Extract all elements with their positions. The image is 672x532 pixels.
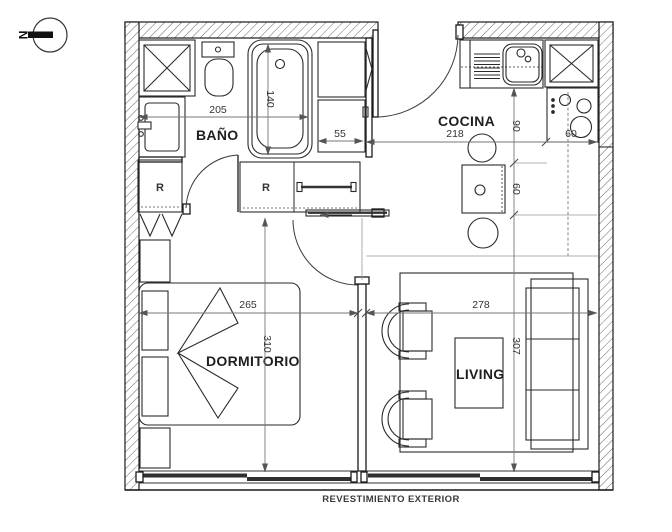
pillow xyxy=(142,291,168,350)
bedroom: DORMITORIO xyxy=(139,218,362,468)
dim-entry-cabinet: 55 xyxy=(334,128,346,140)
entry-door-jamb xyxy=(456,25,463,39)
hall-closet: R xyxy=(240,162,389,216)
window-glazing xyxy=(247,477,351,481)
blanket-fold xyxy=(178,288,238,353)
kitchen-table xyxy=(462,165,505,213)
floor-plan-drawing: N xyxy=(0,0,672,532)
entry-door xyxy=(373,25,463,117)
kitchen-chair-bottom xyxy=(468,218,498,248)
entry-door-swing-arc xyxy=(378,35,458,117)
dim-living-depth: 307 xyxy=(510,337,522,355)
dim-kitchen-width: 218 xyxy=(446,128,464,140)
entry-cabinet-upper xyxy=(318,42,372,97)
dim-table-zone: 60 xyxy=(510,183,522,195)
closet-door-left xyxy=(140,214,160,236)
kitchen: COCINA xyxy=(366,40,598,258)
window-glazing xyxy=(142,474,247,478)
dim-counter-depth: 90 xyxy=(510,120,522,132)
burner-small xyxy=(560,95,571,106)
bedroom-door-swing-arc xyxy=(293,220,358,285)
bathroom-door xyxy=(183,155,238,214)
entry-cabinet-lower xyxy=(318,100,368,152)
wall-top-left xyxy=(125,22,378,38)
dim-bathroom-width: 205 xyxy=(209,104,227,116)
pillow xyxy=(142,357,168,416)
armchair-bottom xyxy=(382,391,432,447)
bathroom: BAÑO xyxy=(138,40,372,158)
exterior-finish-label: REVESTIMIENTO EXTERIOR xyxy=(322,494,459,505)
closet-door-right xyxy=(162,214,182,236)
dim-living-width: 278 xyxy=(472,299,490,311)
kitchen-counter xyxy=(460,40,543,88)
bathroom-closet: R xyxy=(138,160,182,236)
drainer xyxy=(474,54,500,79)
wall-top-right xyxy=(458,22,613,38)
dim-bedroom-depth: 310 xyxy=(261,335,273,353)
kitchen-duct-shaft xyxy=(545,40,598,87)
armchair-top xyxy=(382,303,432,359)
bottom-windows xyxy=(125,471,613,490)
bathroom-door-swing-arc xyxy=(186,155,238,208)
window-glazing xyxy=(480,477,596,481)
nightstand-bottom xyxy=(140,428,170,468)
dim-bathtub-length: 140 xyxy=(264,90,276,108)
kitchen-chair-top xyxy=(468,134,496,162)
wall-right xyxy=(599,22,613,490)
entry-door-leaf xyxy=(373,30,378,117)
bathtub xyxy=(248,40,312,158)
living-label: LIVING xyxy=(456,366,504,382)
dim-bedroom-width: 265 xyxy=(239,299,257,311)
wall-left xyxy=(125,22,139,490)
bedroom-door xyxy=(293,220,358,285)
duct-shaft xyxy=(139,40,195,96)
dim-stove-width: 60 xyxy=(565,128,577,140)
north-label: N xyxy=(16,31,30,40)
hall-closet-label: R xyxy=(262,182,270,194)
bedroom-label: DORMITORIO xyxy=(206,353,300,369)
kitchen-label: COCINA xyxy=(438,113,495,129)
bathtub-faucet xyxy=(276,60,285,69)
window-glazing xyxy=(368,474,480,478)
bathroom-sink xyxy=(138,97,185,157)
nightstand-top xyxy=(140,240,170,282)
sofa xyxy=(526,279,588,449)
compass-needle xyxy=(28,32,53,39)
north-compass: N xyxy=(16,18,67,52)
bathroom-closet-label: R xyxy=(156,182,164,194)
toilet xyxy=(202,42,234,96)
bathroom-label: BAÑO xyxy=(196,126,238,143)
kitchen-sink xyxy=(503,44,542,85)
floor-plan-sheet: N xyxy=(0,0,672,532)
burner-medium xyxy=(577,99,591,113)
wall-bath-entry xyxy=(366,38,372,157)
